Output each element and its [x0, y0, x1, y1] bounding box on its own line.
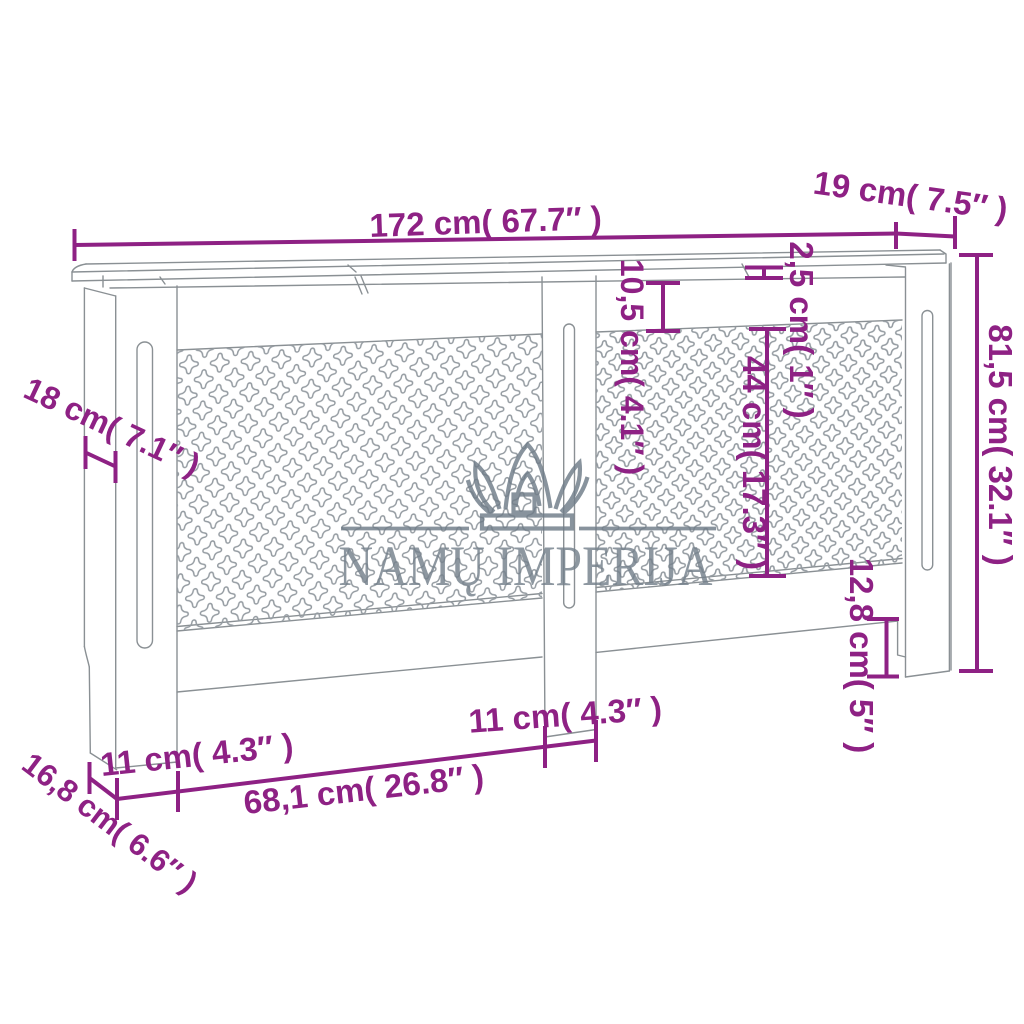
- svg-text:2,5 cm( 1″ ): 2,5 cm( 1″ ): [783, 241, 820, 418]
- svg-text:44 cm( 17.3″ ): 44 cm( 17.3″ ): [736, 356, 773, 570]
- svg-text:12,8 cm( 5″ ): 12,8 cm( 5″ ): [843, 558, 880, 754]
- svg-text:NAMŲ IMPERIJA: NAMŲ IMPERIJA: [339, 535, 713, 598]
- svg-text:81,5 cm( 32.1″ ): 81,5 cm( 32.1″ ): [982, 324, 1019, 565]
- svg-text:10,5 cm( 4.1″ ): 10,5 cm( 4.1″ ): [614, 259, 650, 475]
